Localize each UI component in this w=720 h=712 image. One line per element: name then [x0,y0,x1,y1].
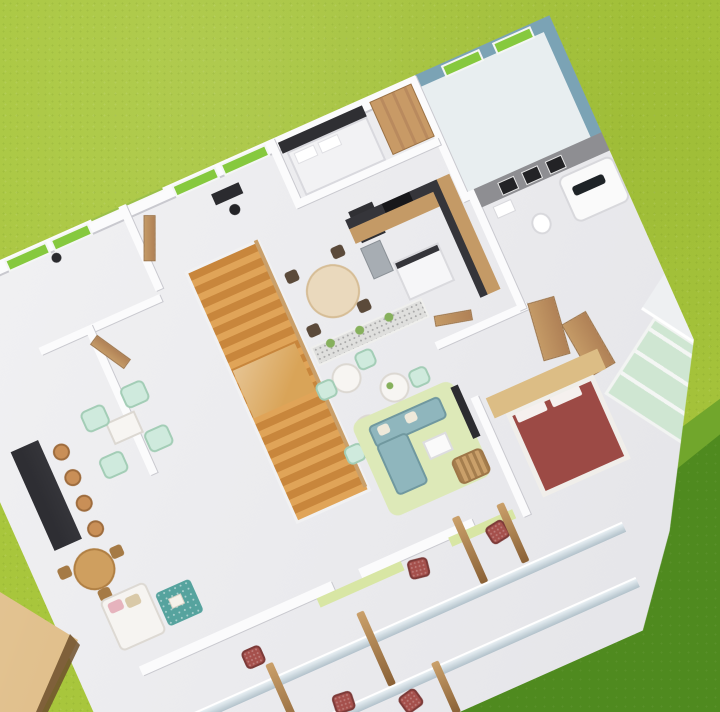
office-chair-icon [50,251,63,264]
toilet-icon [528,209,555,237]
bar-counter [11,440,82,551]
dining-chair [305,322,322,338]
kitchen-island [392,242,455,301]
sink-icon [493,199,517,219]
wicker-chair-red [406,556,431,580]
wicker-chair-red [240,644,267,671]
mint-chair [406,364,432,389]
partition-wall [118,204,163,291]
partition-wall [435,302,530,350]
dining-chair [284,268,301,284]
wood-door [144,215,156,261]
mint-armchair [79,403,112,435]
wicker-chair-red [331,690,357,712]
mint-armchair [97,449,130,481]
dining-chair [330,244,347,260]
bar-stool [62,466,84,488]
dining-table [297,256,368,327]
refrigerator-icon [360,240,394,280]
wood-chair [56,564,73,580]
office-chair-icon [228,202,243,217]
scene [0,0,720,712]
bar-stool [73,492,95,514]
bar-stool [84,518,106,540]
desk-dark [211,182,243,205]
bar-stool [50,441,72,463]
wood-door [434,309,473,326]
